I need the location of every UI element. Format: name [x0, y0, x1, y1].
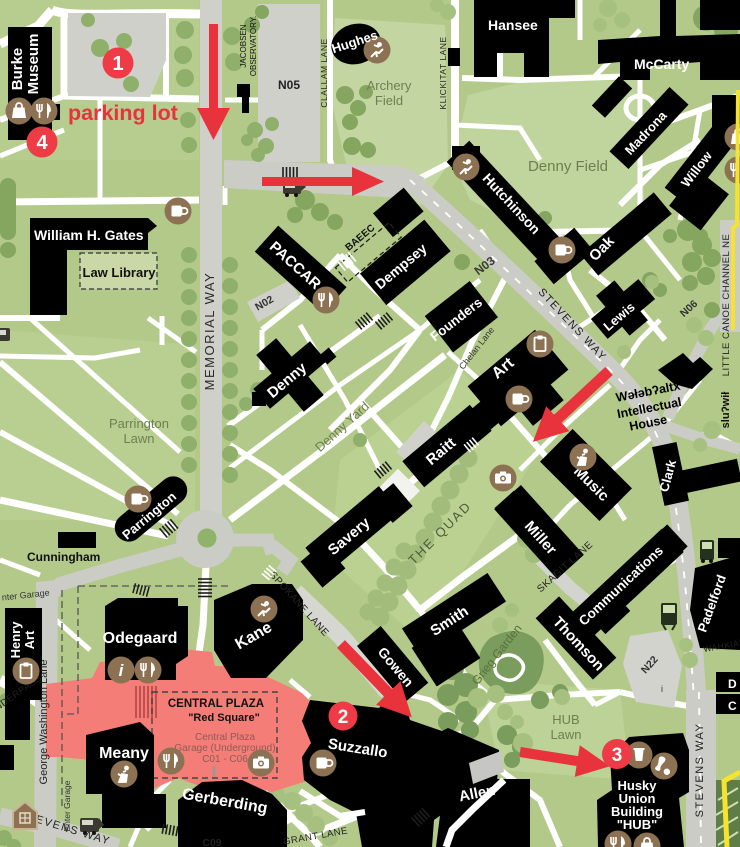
svg-text:Archery: Archery	[367, 78, 412, 93]
svg-text:Museum: Museum	[25, 34, 42, 95]
svg-text:HUB: HUB	[552, 712, 579, 727]
svg-text:LITTLE CANOE CHANNEL NE: LITTLE CANOE CHANNEL NE	[721, 234, 732, 377]
svg-text:sluʔwił: sluʔwił	[720, 392, 732, 429]
svg-text:McCarty: McCarty	[634, 56, 689, 72]
svg-text:"Red Square": "Red Square"	[188, 712, 260, 724]
svg-text:Denny Field: Denny Field	[528, 158, 608, 175]
svg-text:Hansee: Hansee	[488, 17, 538, 33]
svg-text:C: C	[728, 699, 737, 713]
svg-text:"HUB": "HUB"	[617, 817, 658, 832]
svg-text:Henry: Henry	[8, 621, 23, 659]
svg-text:i: i	[661, 684, 663, 694]
svg-text:William H. Gates: William H. Gates	[34, 227, 144, 243]
svg-text:C01 - C06: C01 - C06	[202, 754, 248, 765]
svg-text:JACOBSEN: JACOBSEN	[239, 24, 248, 67]
svg-text:Law Library: Law Library	[83, 265, 157, 280]
svg-text:1: 1	[112, 53, 123, 75]
svg-text:4: 4	[36, 132, 48, 154]
svg-text:Burke: Burke	[9, 48, 26, 91]
svg-text:Art: Art	[22, 630, 37, 649]
svg-text:Central Plaza: Central Plaza	[195, 732, 255, 743]
svg-text:Lawn: Lawn	[550, 727, 581, 742]
svg-text:Enter Garage: Enter Garage	[62, 780, 72, 831]
svg-text:Odegaard: Odegaard	[103, 630, 178, 647]
svg-text:OBSERVATORY.: OBSERVATORY.	[249, 16, 258, 76]
svg-text:Lawn: Lawn	[123, 431, 154, 446]
svg-text:CLALLAM LANE: CLALLAM LANE	[319, 38, 329, 107]
svg-text:Meany: Meany	[99, 745, 149, 762]
svg-text:C09: C09	[202, 837, 221, 847]
svg-text:2: 2	[338, 707, 349, 728]
svg-text:parking lot: parking lot	[68, 101, 178, 125]
svg-text:Field: Field	[375, 93, 403, 108]
svg-text:Cunningham: Cunningham	[27, 550, 100, 564]
svg-text:D: D	[728, 677, 737, 691]
svg-text:Parrington: Parrington	[109, 416, 169, 431]
svg-text:N05: N05	[278, 78, 300, 92]
svg-text:CENTRAL PLAZA: CENTRAL PLAZA	[168, 698, 264, 710]
svg-text:STEVENS WAY: STEVENS WAY	[694, 723, 706, 818]
svg-text:MEMORIAL WAY: MEMORIAL WAY	[202, 272, 217, 391]
svg-text:KLICKITAT LANE: KLICKITAT LANE	[438, 36, 448, 109]
svg-text:3: 3	[612, 745, 623, 766]
